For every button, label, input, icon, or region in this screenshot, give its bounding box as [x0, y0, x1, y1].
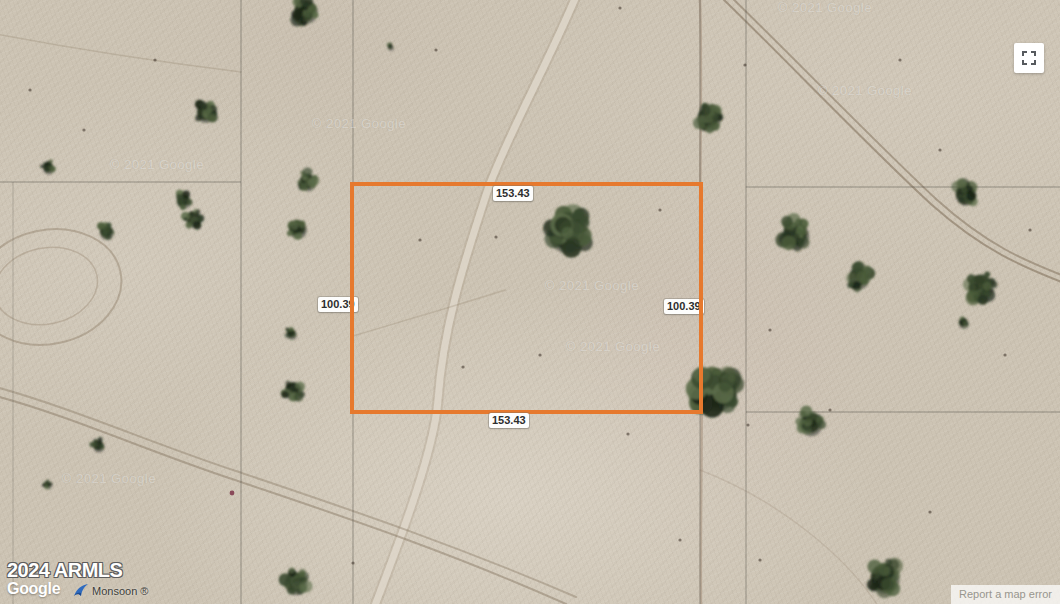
fullscreen-corners-icon [1022, 51, 1036, 65]
monsoon-attribution: Monsoon ® [72, 583, 148, 598]
monsoon-label: Monsoon ® [92, 585, 148, 597]
google-watermark: © 2021 Google [545, 278, 639, 293]
google-watermark: © 2021 Google [62, 471, 156, 486]
google-watermark: © 2021 Google [566, 339, 660, 354]
terrain-layer [0, 0, 1060, 604]
dimension-label-top: 153.43 [493, 186, 533, 201]
google-watermark: © 2021 Google [312, 116, 406, 131]
dimension-label-left: 100.39 [318, 297, 358, 312]
satellite-map[interactable]: © 2021 Google© 2021 Google© 2021 Google©… [0, 0, 1060, 604]
dimension-label-bottom: 153.43 [489, 413, 529, 428]
monsoon-logo-icon [72, 583, 89, 598]
google-watermark: © 2021 Google [778, 0, 872, 15]
parcel-boundary [350, 182, 703, 414]
google-watermarks: © 2021 Google© 2021 Google© 2021 Google©… [0, 0, 1060, 604]
google-watermark: © 2021 Google [110, 157, 204, 172]
fullscreen-button[interactable] [1014, 43, 1044, 73]
google-logo[interactable]: Google [7, 580, 60, 598]
google-watermark: © 2021 Google [818, 83, 912, 98]
dimension-label-right: 100.39 [664, 299, 704, 314]
report-map-error-link[interactable]: Report a map error [951, 585, 1060, 604]
copyright-armls: 2024 ARMLS [7, 559, 122, 582]
